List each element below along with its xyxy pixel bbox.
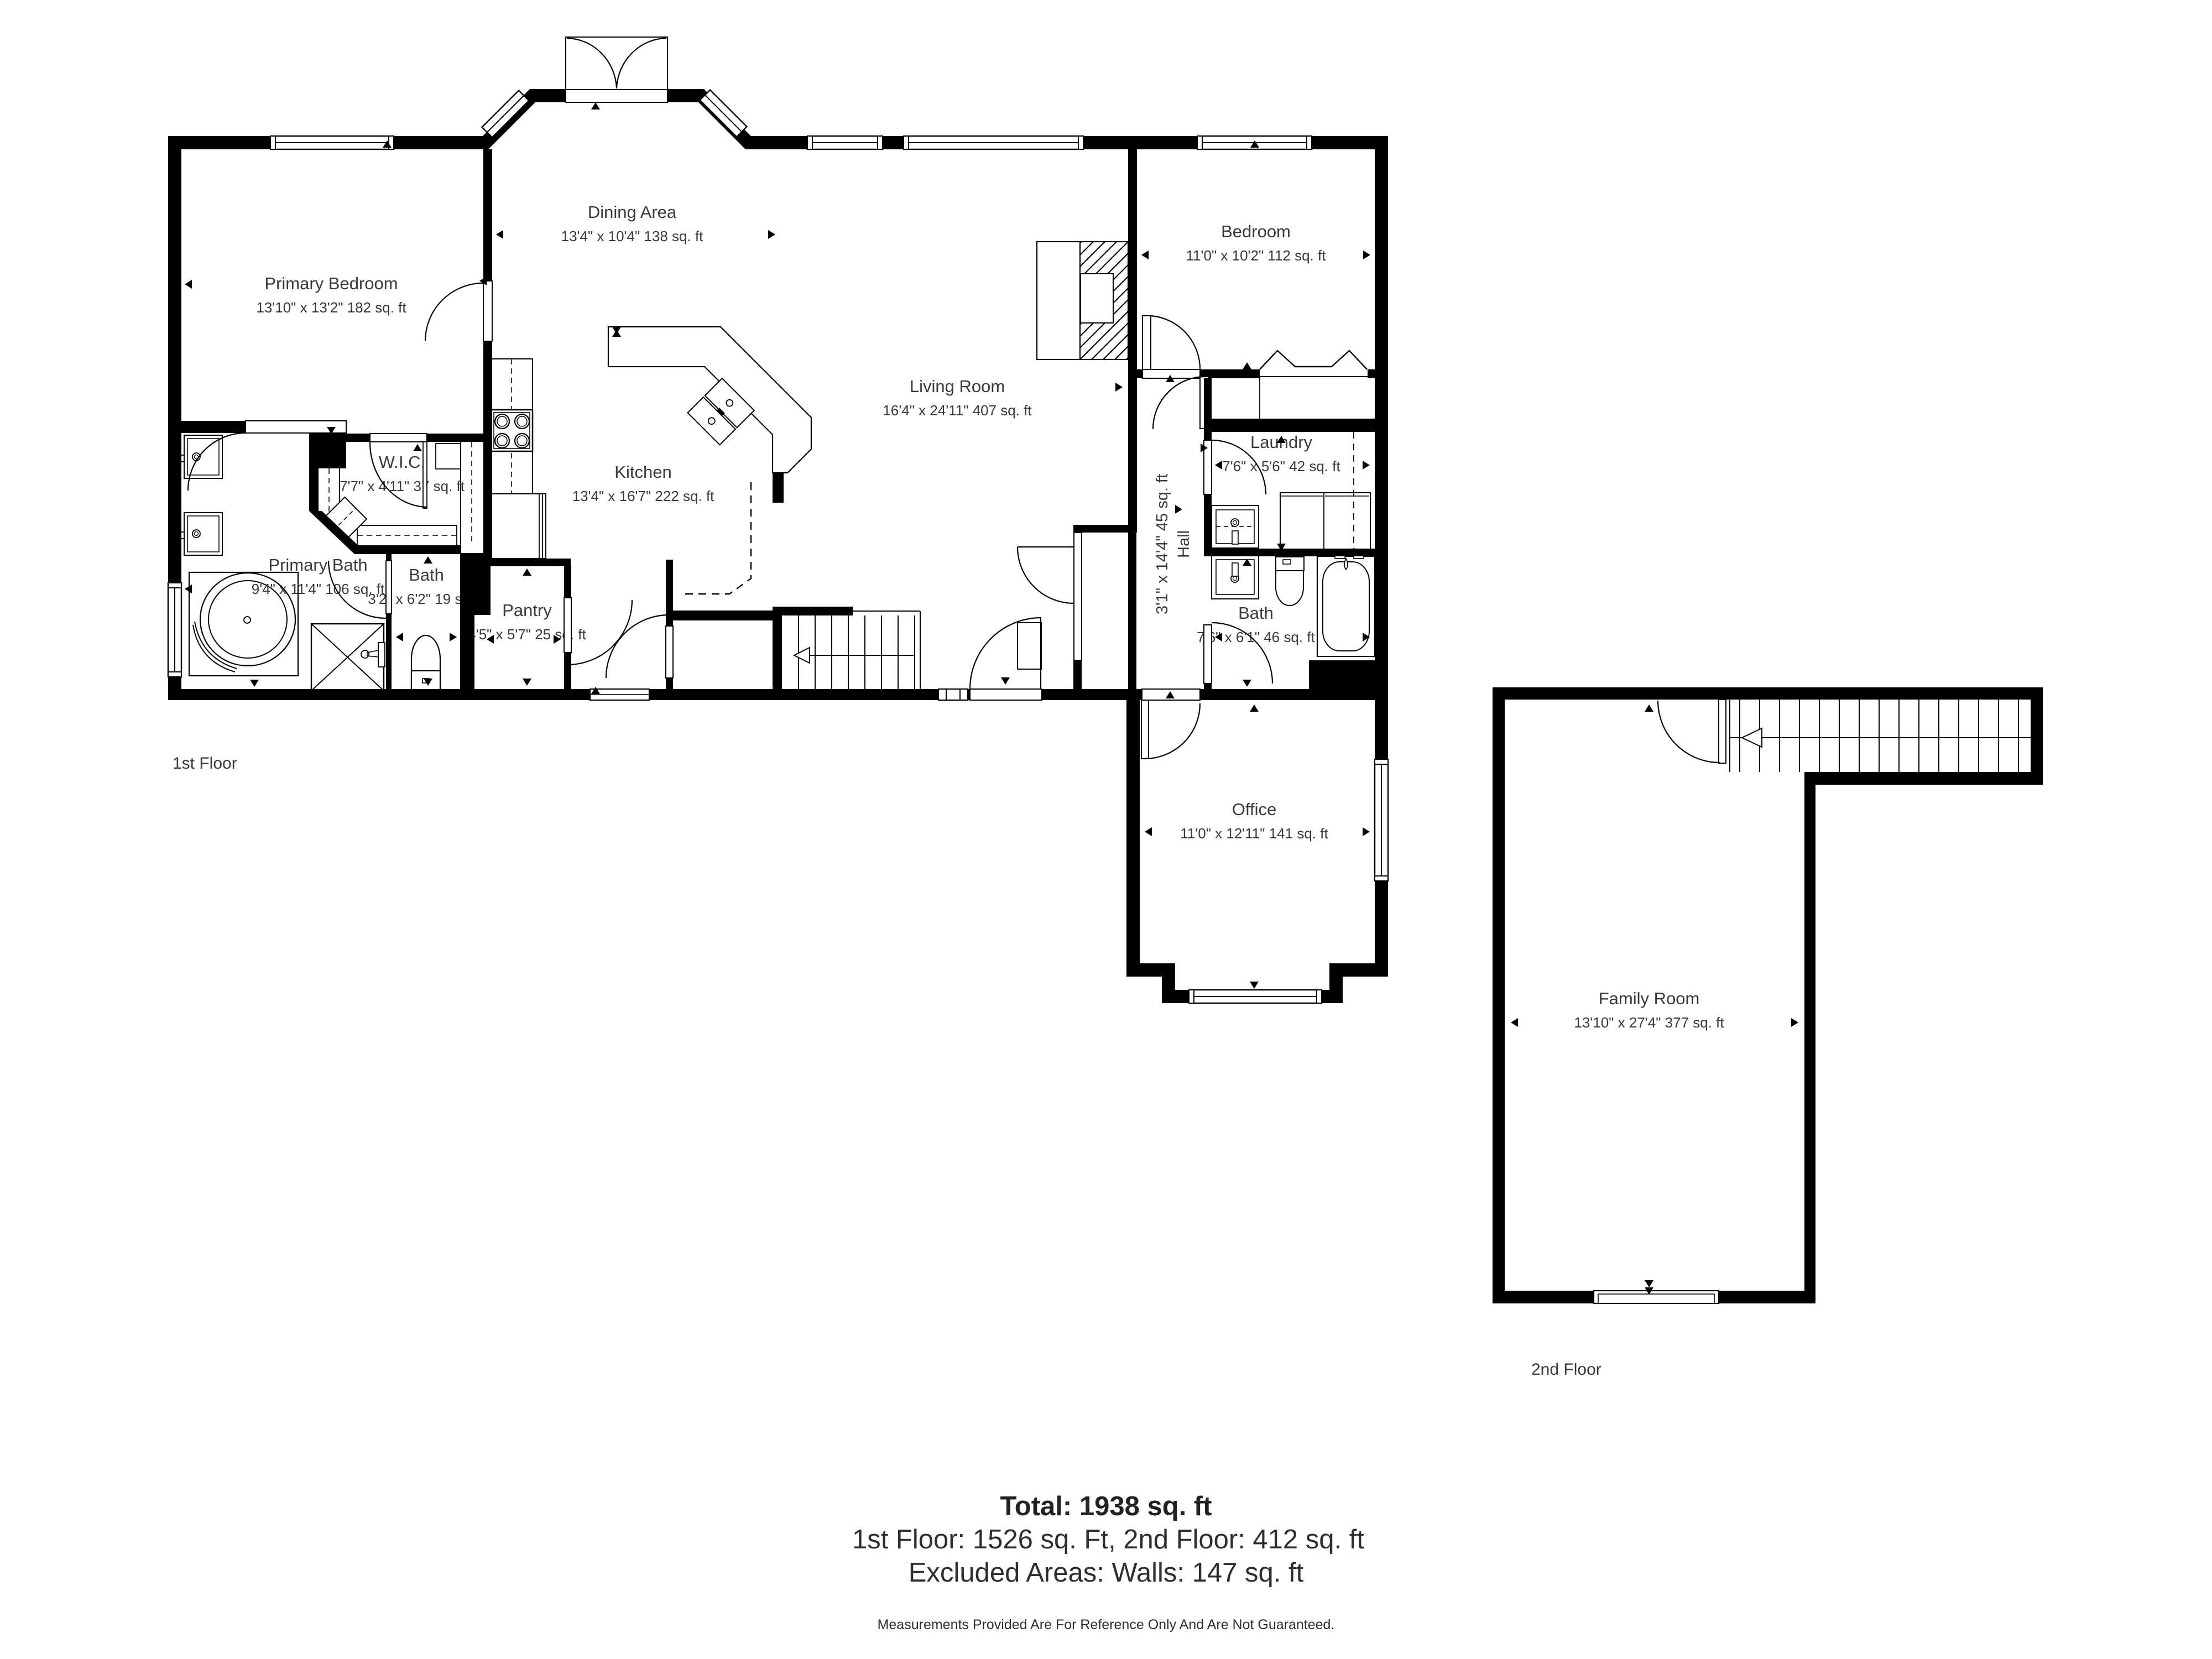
svg-text:Bath: Bath	[409, 565, 444, 585]
svg-text:Office: Office	[1232, 800, 1276, 819]
svg-text:Living Room: Living Room	[910, 377, 1005, 396]
svg-text:1st Floor: 1526 sq. Ft, 2nd Fl: 1st Floor: 1526 sq. Ft, 2nd Floor: 412 s…	[852, 1525, 1364, 1554]
svg-text:13'10" x 27'4" 377 sq. ft: 13'10" x 27'4" 377 sq. ft	[1574, 1014, 1724, 1031]
svg-text:13'4" x 10'4" 138 sq. ft: 13'4" x 10'4" 138 sq. ft	[561, 228, 704, 244]
svg-text:16'4" x 24'11" 407 sq. ft: 16'4" x 24'11" 407 sq. ft	[883, 402, 1032, 419]
svg-text:Primary Bath: Primary Bath	[268, 555, 367, 575]
svg-text:9'4" x 11'4" 106 sq. ft: 9'4" x 11'4" 106 sq. ft	[252, 581, 385, 597]
svg-text:Bedroom: Bedroom	[1221, 222, 1291, 241]
svg-text:Family Room: Family Room	[1599, 989, 1700, 1008]
svg-text:13'4" x 16'7" 222 sq. ft: 13'4" x 16'7" 222 sq. ft	[572, 488, 715, 504]
svg-text:Excluded Areas: Walls: 147 sq.: Excluded Areas: Walls: 147 sq. ft	[909, 1558, 1304, 1588]
svg-text:Primary Bedroom: Primary Bedroom	[264, 274, 398, 293]
svg-text:Bath: Bath	[1238, 603, 1274, 623]
svg-text:3'1" x 14'4" 45 sq. ft: 3'1" x 14'4" 45 sq. ft	[1154, 474, 1171, 614]
svg-text:1st Floor: 1st Floor	[173, 754, 237, 773]
svg-text:Dining Area: Dining Area	[588, 202, 677, 222]
svg-text:Hall: Hall	[1175, 530, 1193, 558]
svg-text:Kitchen: Kitchen	[614, 462, 671, 482]
svg-text:11'0" x 12'11" 141 sq. ft: 11'0" x 12'11" 141 sq. ft	[1180, 825, 1328, 842]
svg-text:Total: 1938 sq. ft: Total: 1938 sq. ft	[1000, 1491, 1212, 1521]
svg-text:11'0" x 10'2" 112 sq. ft: 11'0" x 10'2" 112 sq. ft	[1186, 247, 1327, 264]
svg-text:7'7" x 4'11" 37 sq. ft: 7'7" x 4'11" 37 sq. ft	[340, 478, 465, 494]
svg-text:W.I.C.: W.I.C.	[379, 452, 425, 472]
svg-text:13'10" x 13'2" 182 sq. ft: 13'10" x 13'2" 182 sq. ft	[256, 299, 406, 316]
svg-text:2nd Floor: 2nd Floor	[1531, 1360, 1601, 1379]
svg-text:Measurements Provided Are For: Measurements Provided Are For Reference …	[878, 1617, 1335, 1632]
svg-text:7'6" x 5'6" 42 sq. ft: 7'6" x 5'6" 42 sq. ft	[1222, 458, 1340, 474]
svg-text:Pantry: Pantry	[502, 601, 552, 620]
